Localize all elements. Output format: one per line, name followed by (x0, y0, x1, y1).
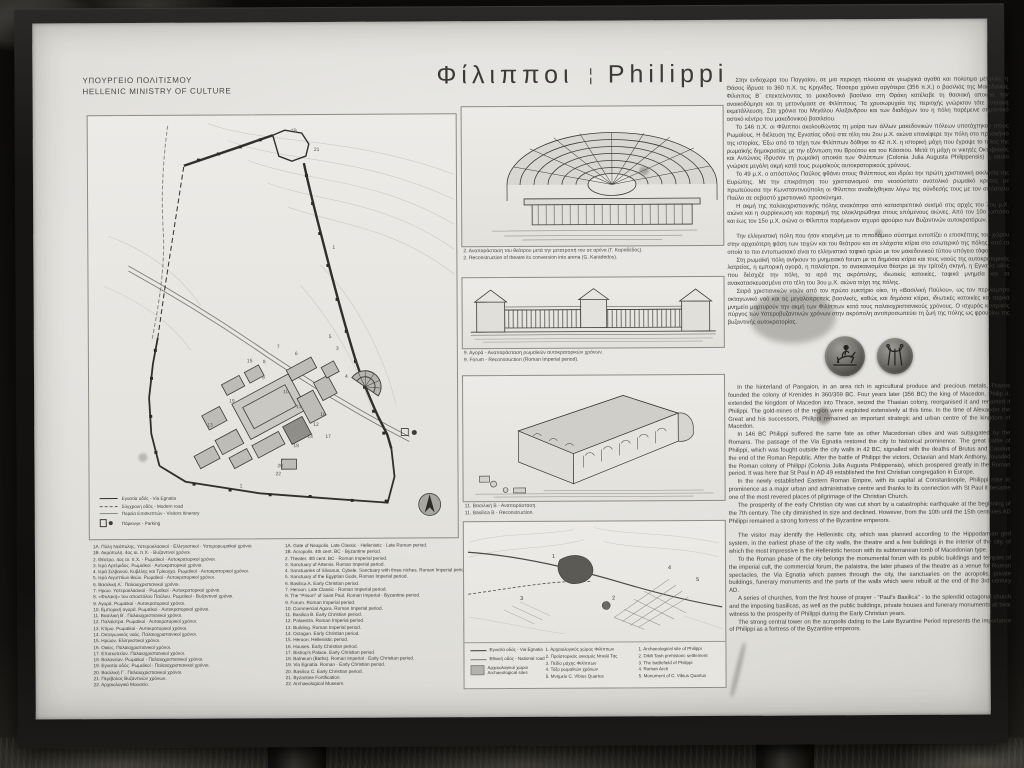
greek-paragraph: Σειρά χριστιανικών ναών από τον πρώτο ευ… (728, 287, 1010, 328)
svg-text:17: 17 (325, 434, 331, 440)
archaeological-sites-swatch-icon (471, 665, 485, 675)
theatre-reconstruction-figure (461, 105, 725, 247)
caption-english: 11. Basilica B - Reconstruction. (465, 509, 724, 517)
area-map: 1 2 3 4 5 Εγνατία οδός - Via Egnatia Εθν… (463, 520, 727, 689)
svg-text:14: 14 (307, 434, 313, 440)
area-point-item: 5. Μνημείο C. Vibius Quartus (546, 673, 639, 680)
svg-text:1: 1 (552, 554, 555, 560)
svg-text:22: 22 (275, 471, 281, 477)
site-plan-drawing: 1Β21 11 23 45 67 89 1011 1213 1415 1617 … (88, 114, 458, 539)
svg-text:2: 2 (612, 595, 615, 601)
figure2-caption: 9. Αγορά - Αναπαράσταση ρωμαϊκών αυτοκρα… (464, 349, 723, 364)
svg-text:3: 3 (520, 596, 523, 602)
svg-text:11: 11 (296, 404, 301, 410)
ministry-header: ΥΠΟΥΡΓΕΙΟ ΠΟΛΙΤΙΣΜΟΥ HELLENIC MINISTRY O… (82, 74, 231, 97)
svg-text:5: 5 (696, 577, 699, 583)
area-points-english: 1. Archaeological site of Philippi2. Dik… (638, 646, 721, 685)
english-paragraph: To the Roman phase of the city belongs t… (729, 555, 1011, 596)
svg-text:18: 18 (293, 443, 299, 449)
compass-rose-icon (419, 493, 441, 515)
area-points-greek: 1. Αρχαιολογικός χώρος Φιλίππων2. Προϊστ… (546, 646, 639, 685)
text-column: Στην ενδοχώρα του Παγγαίου, σε μια περιο… (726, 76, 1011, 723)
legend-row: Εθνική οδός - National road (470, 656, 545, 663)
legend-row: Πορεία Επισκεπτών - Visitors Itinerary (100, 511, 240, 517)
svg-text:15: 15 (247, 358, 253, 364)
svg-text:3: 3 (336, 346, 339, 352)
coin-photos (728, 336, 1010, 377)
coin-tripod (877, 338, 913, 374)
svg-text:19: 19 (229, 398, 235, 404)
legend-item: 4. Sanctuaries of Silvanus, Cybele. Sanc… (285, 567, 467, 574)
svg-text:8: 8 (263, 359, 266, 365)
greek-site-text: Την ελληνιστική πόλη που ήταν κτισμένη μ… (727, 232, 1009, 328)
figure3-caption: 11. Βασιλική Β - Αναπαράσταση. 11. Basil… (465, 502, 724, 517)
national-road-line-icon (470, 659, 486, 660)
svg-text:5: 5 (329, 334, 332, 340)
english-paragraph: The strong central tower on the acropoli… (729, 618, 1011, 635)
legend-label: Πάρκινγκ - Parking (122, 520, 160, 525)
information-board: ΥΠΟΥΡΓΕΙΟ ΠΟΛΙΤΙΣΜΟΥ HELLENIC MINISTRY O… (32, 19, 991, 720)
greek-paragraph: Στη ρωμαϊκή πόλη ανήκουν το μνημειακό fo… (727, 256, 1009, 289)
svg-text:13: 13 (207, 423, 213, 429)
monument-legend-english: 1A. Gate of Neapolis. Late Classic - Hel… (285, 542, 468, 687)
parking-icon (100, 519, 118, 527)
legend-row: Εγνατία οδός - Via Egnatia (100, 496, 240, 502)
basilica-reconstruction-drawing (463, 375, 725, 501)
legend-row: Σύγχρονη οδός - Modern road (100, 503, 240, 509)
monument-legend: 1Α. Πύλη Νεάπολης. Υστεροκλασικοί - Ελλη… (93, 542, 468, 688)
theatre-reconstruction-drawing (462, 106, 724, 246)
legend-label: Εγνατία οδός - Via Egnatia (122, 496, 176, 501)
legend-row: Πάρκινγκ - Parking (100, 518, 240, 527)
english-history-text: In the hinterland of Pangaion, in an are… (728, 384, 1011, 527)
forum-reconstruction-drawing (462, 277, 723, 348)
area-legend-symbols: Εγνατία οδός - Via Egnatia Εθνική οδός -… (470, 647, 545, 686)
caption-english: 2. Reconstruction of theatre its convers… (463, 254, 722, 262)
svg-text:9: 9 (262, 375, 265, 381)
english-paragraph: The visitor may identify the Hellenistic… (729, 532, 1011, 557)
svg-text:2: 2 (355, 360, 358, 366)
legend-item: 4. Ιερά Σιλβανού, Κυβέλης και Τρίκογχο. … (93, 568, 275, 575)
svg-text:10: 10 (283, 389, 289, 395)
legend-label: Αρχαιολογικοί χώροι Archaeological sites (488, 664, 529, 675)
greek-paragraph: Στην ενδοχώρα του Παγγαίου, σε μια περιο… (726, 76, 1008, 125)
page-title: Φίλιπποι ¦ Philippi (436, 60, 728, 91)
monument-legend-greek: 1Α. Πύλη Νεάπολης. Υστεροκλασικοί - Ελλη… (93, 543, 276, 688)
via-egnatia-line-icon (100, 498, 118, 499)
figure1-caption: 2. Αναπαράσταση του θεάτρου μετά την μετ… (463, 247, 722, 262)
ministry-line-english: HELLENIC MINISTRY OF CULTURE (82, 86, 231, 98)
sign-post-right (756, 742, 814, 768)
caption-english: 9. Forum - Reconstruction (Roman Imperia… (464, 356, 723, 364)
english-paragraph: The prosperity of the early Christian ci… (729, 501, 1011, 526)
svg-text:20: 20 (277, 463, 283, 469)
svg-text:16: 16 (320, 412, 326, 418)
svg-text:1Β: 1Β (291, 128, 298, 134)
legend-item: 22. Αρχαιολογικό Μουσείο. (94, 681, 276, 688)
title-english: Philippi (608, 60, 729, 90)
english-site-text: The visitor may identify the Hellenistic… (729, 532, 1012, 635)
legend-item: 22. Archaeological Museum. (286, 680, 468, 687)
english-paragraph: A series of churches, from the first hou… (729, 594, 1011, 619)
site-map-legend: Εγνατία οδός - Via Egnatia Σύγχρονη οδός… (100, 493, 240, 527)
svg-text:12: 12 (313, 422, 319, 428)
svg-text:7: 7 (277, 344, 280, 350)
svg-text:6: 6 (295, 351, 298, 357)
legend-row: Αρχαιολογικοί χώροι Archaeological sites (471, 664, 546, 676)
legend-row: Εγνατία οδός - Via Egnatia (470, 647, 545, 654)
ministry-line-greek: ΥΠΟΥΡΓΕΙΟ ΠΟΛΙΤΙΣΜΟΥ (82, 74, 231, 86)
sign-frame: ΥΠΟΥΡΓΕΙΟ ΠΟΛΙΤΙΣΜΟΥ HELLENIC MINISTRY O… (14, 3, 1008, 748)
english-paragraph: In the hinterland of Pangaion, in an are… (728, 384, 1010, 433)
horseman-icon (825, 336, 865, 376)
svg-text:4: 4 (668, 565, 671, 571)
tripod-icon (877, 338, 913, 374)
english-paragraph: In the newly established Eastern Roman E… (729, 478, 1011, 503)
greek-history-text: Στην ενδοχώρα του Παγγαίου, σε μια περιο… (726, 76, 1009, 227)
photo-scene: ΥΠΟΥΡΓΕΙΟ ΠΟΛΙΤΙΣΜΟΥ HELLENIC MINISTRY O… (0, 0, 1024, 768)
legend-label: Σύγχρονη οδός - Modern road (122, 504, 183, 509)
area-map-drawing: 1 2 3 4 5 (464, 521, 726, 640)
svg-text:1: 1 (240, 483, 243, 489)
greek-paragraph: Την ελληνιστική πόλη που ήταν κτισμένη μ… (727, 232, 1009, 257)
greek-paragraph: Το 146 π.Χ. οι Φίλιπποι ακολουθώντας τη … (727, 123, 1009, 172)
english-paragraph: In 146 BC Philippi suffered the same fat… (728, 431, 1010, 480)
title-greek: Φίλιπποι (436, 61, 573, 91)
basilica-reconstruction-figure (462, 374, 726, 502)
forum-reconstruction-figure (461, 276, 724, 349)
area-map-legend: Εγνατία οδός - Via Egnatia Εθνική οδός -… (464, 641, 725, 688)
legend-item: 1Α. Πύλη Νεάπολης. Υστεροκλασικοί - Ελλη… (93, 543, 275, 550)
parking-icon (401, 428, 417, 435)
greek-paragraph: Η ακμή της παλαιοχριστιανικής πόλης ανακ… (727, 202, 1009, 227)
svg-text:21: 21 (314, 147, 320, 153)
svg-text:4: 4 (345, 374, 348, 380)
visitors-itinerary-line-icon (100, 513, 118, 514)
legend-label: Εγνατία οδός - Via Egnatia (489, 647, 542, 654)
coin-horseman (825, 336, 865, 376)
greek-paragraph: Το 49 μ.Χ. ο απόστολος Παύλος φθάνει στο… (727, 171, 1009, 204)
area-point-item: 5. Monument of C. Vibius Quartus (639, 673, 722, 680)
via-egnatia-line-icon (470, 650, 486, 651)
modern-road-line-icon (100, 506, 118, 507)
legend-label: Εθνική οδός - National road (489, 656, 544, 663)
title-divider: ¦ (588, 66, 593, 86)
legend-label: Πορεία Επισκεπτών - Visitors Itinerary (122, 511, 200, 516)
sites-label-english: Archaeological sites (488, 670, 529, 676)
svg-text:1: 1 (332, 245, 335, 251)
site-plan-map: 1Β21 11 23 45 67 89 1011 1213 1415 1617 … (87, 113, 459, 540)
